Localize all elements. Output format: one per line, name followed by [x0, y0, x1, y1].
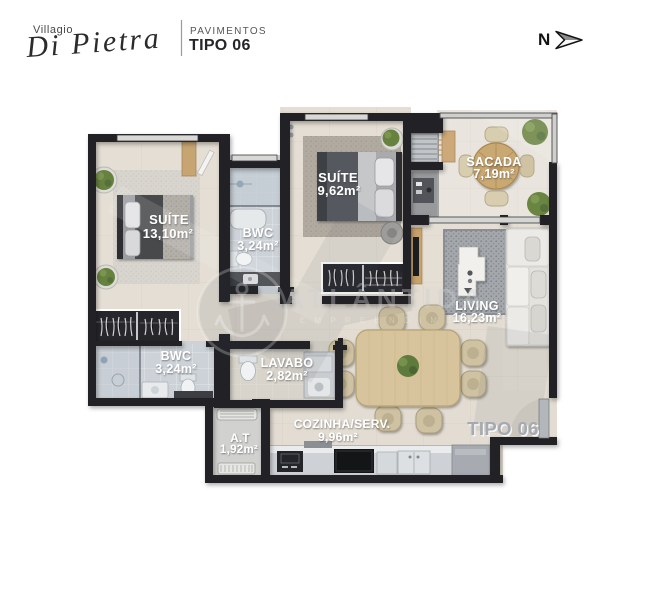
svg-text:COZINHA/SERV.: COZINHA/SERV. [294, 417, 391, 431]
svg-text:BWC: BWC [243, 226, 274, 240]
svg-text:E M P R E E N D I M E N T O S: E M P R E E N D I M E N T O S [300, 316, 514, 325]
svg-text:7,19m²: 7,19m² [473, 167, 514, 181]
svg-text:2,82m²: 2,82m² [266, 369, 307, 383]
svg-text:3,24m²: 3,24m² [237, 239, 278, 253]
svg-text:TIPO 06: TIPO 06 [189, 37, 251, 54]
svg-text:13,10m²: 13,10m² [143, 226, 194, 241]
svg-text:PAVIMENTOS: PAVIMENTOS [190, 26, 267, 37]
svg-text:9,62m²: 9,62m² [318, 183, 361, 198]
svg-text:N: N [538, 30, 550, 49]
svg-text:TIPO 06: TIPO 06 [467, 418, 539, 439]
svg-text:LAVABO: LAVABO [261, 356, 314, 370]
svg-text:SUÍTE: SUÍTE [149, 212, 189, 227]
svg-text:9,96m²: 9,96m² [318, 430, 358, 444]
svg-text:3,24m²: 3,24m² [155, 362, 196, 376]
svg-text:1,92m²: 1,92m² [220, 444, 258, 456]
svg-text:ATLÂNTIDA: ATLÂNTIDA [284, 283, 487, 314]
svg-text:BWC: BWC [161, 349, 192, 363]
